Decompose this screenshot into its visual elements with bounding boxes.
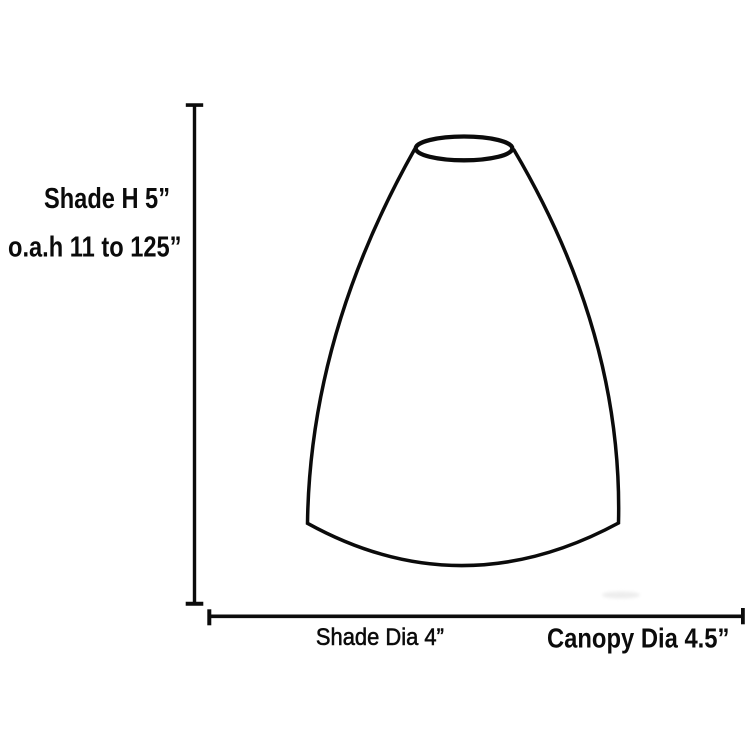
svg-text:Shade H 5”: Shade H 5” [44, 183, 170, 215]
svg-text:Canopy Dia 4.5”: Canopy Dia 4.5” [547, 622, 729, 653]
svg-text:o.a.h 11 to 125”: o.a.h 11 to 125” [8, 232, 182, 264]
svg-text:Shade Dia 4”: Shade Dia 4” [316, 625, 444, 651]
